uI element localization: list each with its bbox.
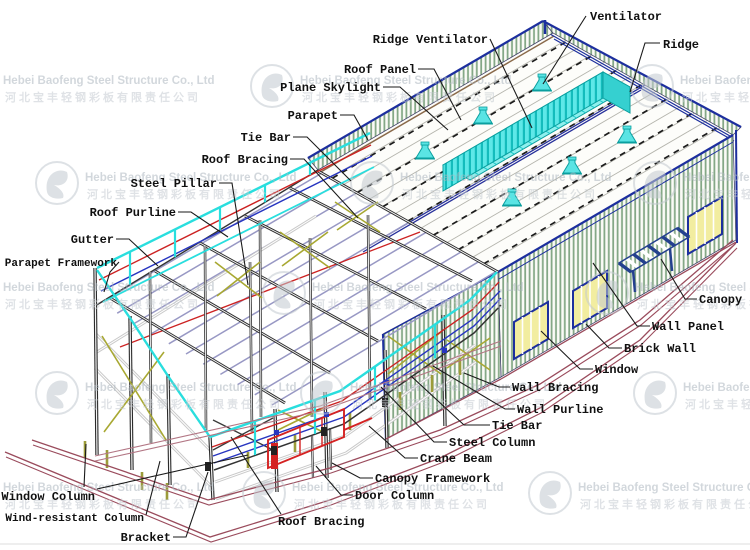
steel-structure-diagram: Hebei Baofeng Steel Structure Co., Ltd河北… xyxy=(0,0,750,550)
part-label-canopy: Canopy xyxy=(699,293,742,307)
part-label-wind-resistant-column: Wind-resistant Column xyxy=(5,513,144,525)
leader-line-brick-wall xyxy=(586,324,622,348)
watermark-company-en: Hebei Baofeng Steel Structure Co., Ltd xyxy=(85,382,297,394)
part-label-plane-skylight: Plane Skylight xyxy=(280,81,381,95)
watermark-company-cn: 河北宝丰轻钢彩板有限责任公司 xyxy=(402,187,598,201)
part-label-roof-bracing-top: Roof Bracing xyxy=(202,153,288,167)
part-label-wall-panel: Wall Panel xyxy=(652,320,724,334)
watermark-company-cn: 河北宝丰轻钢彩板有限责任公司 xyxy=(314,297,510,311)
watermark-company-en: Hebei Baofeng Steel Structure Co., Ltd xyxy=(578,482,750,494)
watermark: Hebei Baofeng Steel Structure Co., Ltd河北… xyxy=(631,65,750,107)
part-label-gutter: Gutter xyxy=(71,233,114,247)
part-label-roof-purline: Roof Purline xyxy=(90,206,176,220)
watermark-company-en: Hebei Baofeng Steel Structure Co., Ltd xyxy=(680,75,750,87)
watermark-company-cn: 河北宝丰轻钢彩板有限责任公司 xyxy=(87,397,283,411)
watermark-company-cn: 河北宝丰轻钢彩板有限责任公司 xyxy=(682,90,750,104)
watermark: Hebei Baofeng Steel Structure Co., Ltd河北… xyxy=(0,272,215,314)
watermark: Hebei Baofeng Steel Structure Co., Ltd河北… xyxy=(0,65,215,107)
watermark-company-cn: 河北宝丰轻钢彩板有限责任公司 xyxy=(685,397,750,411)
part-label-wall-purline: Wall Purline xyxy=(517,403,603,417)
watermark-company-en: Hebei Baofeng Steel Structure Co., Ltd xyxy=(312,282,524,294)
part-label-parapet-framework: Parapet Framework xyxy=(5,258,118,270)
part-label-ventilator: Ventilator xyxy=(590,10,662,24)
part-label-steel-pillar: Steel Pillar xyxy=(131,177,217,191)
part-label-crane-beam: Crane Beam xyxy=(420,452,492,466)
watermark-company-cn: 河北宝丰轻钢彩板有限责任公司 xyxy=(685,187,750,201)
watermark: Hebei Baofeng Steel Structure Co., Ltd河北… xyxy=(634,372,750,414)
part-label-wall-bracing: Wall Bracing xyxy=(512,381,598,395)
part-label-roof-panel: Roof Panel xyxy=(344,63,416,77)
leader-line-gutter xyxy=(116,239,158,266)
part-label-door-column: Door Column xyxy=(355,489,434,503)
watermark-company-cn: 河北宝丰轻钢彩板有限责任公司 xyxy=(5,90,201,104)
part-label-brick-wall: Brick Wall xyxy=(624,342,696,356)
part-label-bracket: Bracket xyxy=(121,531,171,545)
part-label-canopy-framework: Canopy Framework xyxy=(375,472,490,486)
watermark: Hebei Baofeng Steel Structure Co., Ltd河北… xyxy=(529,472,750,514)
watermark-company-en: Hebei Baofeng Steel Structure Co., Ltd xyxy=(683,382,750,394)
part-label-ridge-ventilator: Ridge Ventilator xyxy=(373,33,488,47)
part-label-window-column: Window Column xyxy=(1,490,95,504)
part-label-window: Window xyxy=(595,363,639,377)
part-label-roof-bracing-bottom: Roof Bracing xyxy=(278,515,364,529)
watermark-company-en: Hebei Baofeng Steel Structure Co., Ltd xyxy=(400,172,612,184)
part-label-steel-column: Steel Column xyxy=(449,436,535,450)
part-label-tie-bar-bottom: Tie Bar xyxy=(492,419,542,433)
watermark-company-en: Hebei Baofeng Steel Structure Co., Ltd xyxy=(3,282,215,294)
watermark-company-cn: 河北宝丰轻钢彩板有限责任公司 xyxy=(5,297,201,311)
part-label-tie-bar-top: Tie Bar xyxy=(241,131,291,145)
watermark-company-en: Hebei Baofeng Steel Structure Co., Ltd xyxy=(3,75,215,87)
watermark: Hebei Baofeng Steel Structure Co., Ltd河北… xyxy=(36,372,297,414)
watermark-company-en: Hebei Baofeng Steel Structure Co., Ltd xyxy=(683,172,750,184)
watermark-company-cn: 河北宝丰轻钢彩板有限责任公司 xyxy=(580,497,750,511)
part-label-parapet: Parapet xyxy=(288,109,338,123)
diagram-page: Hebei Baofeng Steel Structure Co., Ltd河北… xyxy=(0,0,750,550)
part-label-ridge: Ridge xyxy=(663,38,699,52)
